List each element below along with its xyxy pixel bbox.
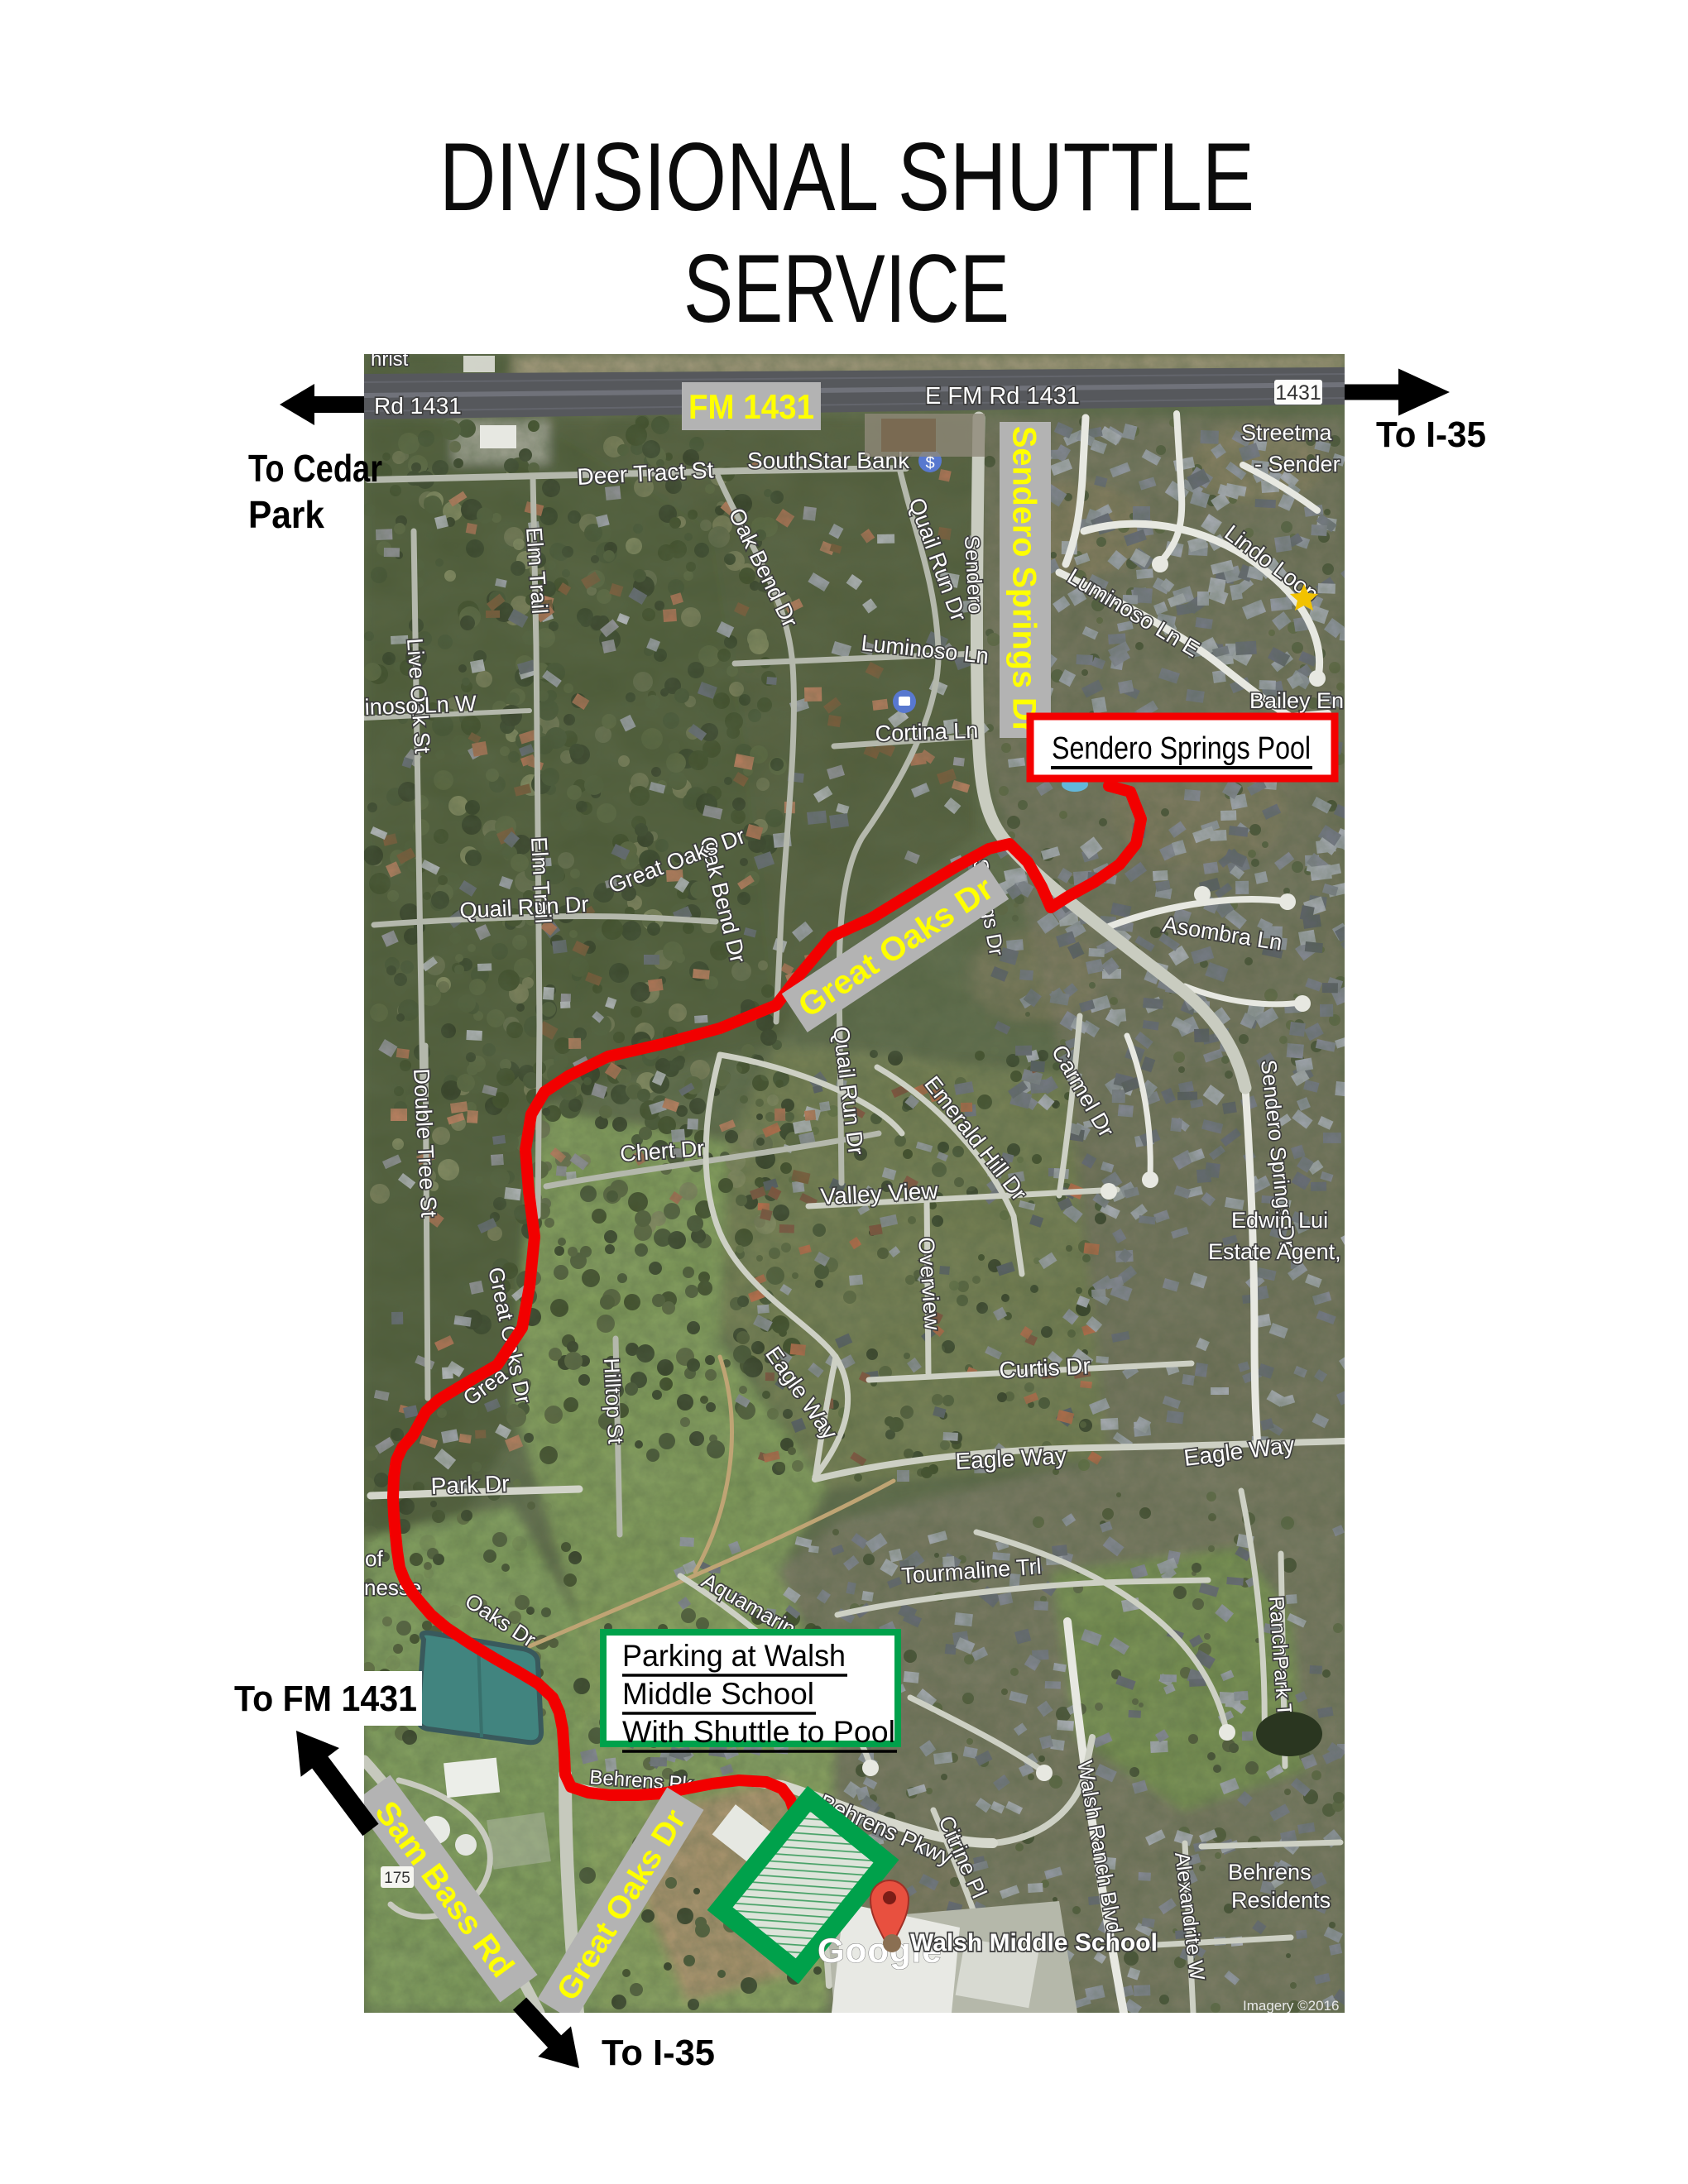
svg-text:SERVICE: SERVICE xyxy=(683,234,1009,342)
svg-text:To FM 1431: To FM 1431 xyxy=(234,1679,417,1719)
svg-text:175: 175 xyxy=(384,1870,410,1887)
svg-text:- Sender: - Sender xyxy=(1254,452,1340,477)
svg-text:With Shuttle to Pool: With Shuttle to Pool xyxy=(622,1715,895,1749)
svg-text:Walsh Middle School: Walsh Middle School xyxy=(910,1929,1158,1956)
svg-text:Sendero Springs Dr: Sendero Springs Dr xyxy=(1006,426,1043,734)
svg-text:of: of xyxy=(365,1546,383,1571)
svg-text:Hilltop St: Hilltop St xyxy=(599,1358,628,1445)
svg-text:Cortina Ln: Cortina Ln xyxy=(875,718,979,746)
svg-text:Edwin Lui: Edwin Lui xyxy=(1231,1208,1328,1233)
svg-text:Middle School: Middle School xyxy=(622,1677,814,1711)
svg-text:Park Dr: Park Dr xyxy=(430,1471,510,1499)
svg-text:Streetma: Streetma xyxy=(1241,420,1333,445)
svg-text:Estate Agent, Re: Estate Agent, Re xyxy=(1208,1239,1376,1264)
svg-text:DIVISIONAL SHUTTLE: DIVISIONAL SHUTTLE xyxy=(439,122,1254,231)
svg-text:hrist: hrist xyxy=(371,348,409,371)
svg-text:Park: Park xyxy=(248,493,324,536)
svg-text:Sendero Springs Pool: Sendero Springs Pool xyxy=(1052,731,1311,766)
svg-text:Sendero: Sendero xyxy=(960,535,987,615)
svg-text:Behrens: Behrens xyxy=(1228,1860,1312,1885)
svg-text:To Cedar: To Cedar xyxy=(248,447,382,490)
svg-text:Rd 1431: Rd 1431 xyxy=(374,393,462,419)
svg-text:1431: 1431 xyxy=(1275,381,1321,405)
svg-text:E FM Rd 1431: E FM Rd 1431 xyxy=(925,383,1080,409)
svg-text:Imagery ©2016: Imagery ©2016 xyxy=(1243,1998,1339,2014)
svg-text:Curtis Dr: Curtis Dr xyxy=(999,1353,1091,1383)
svg-text:Parking at Walsh: Parking at Walsh xyxy=(622,1639,846,1673)
svg-text:Residents: Residents xyxy=(1231,1888,1331,1913)
svg-text:FM 1431: FM 1431 xyxy=(688,387,814,426)
svg-text:inoso Ln W: inoso Ln W xyxy=(364,691,477,720)
svg-text:$: $ xyxy=(925,454,934,472)
svg-text:Bailey En: Bailey En xyxy=(1249,688,1344,713)
svg-text:To I-35: To I-35 xyxy=(602,2033,715,2073)
svg-text:To I-35: To I-35 xyxy=(1376,414,1486,455)
